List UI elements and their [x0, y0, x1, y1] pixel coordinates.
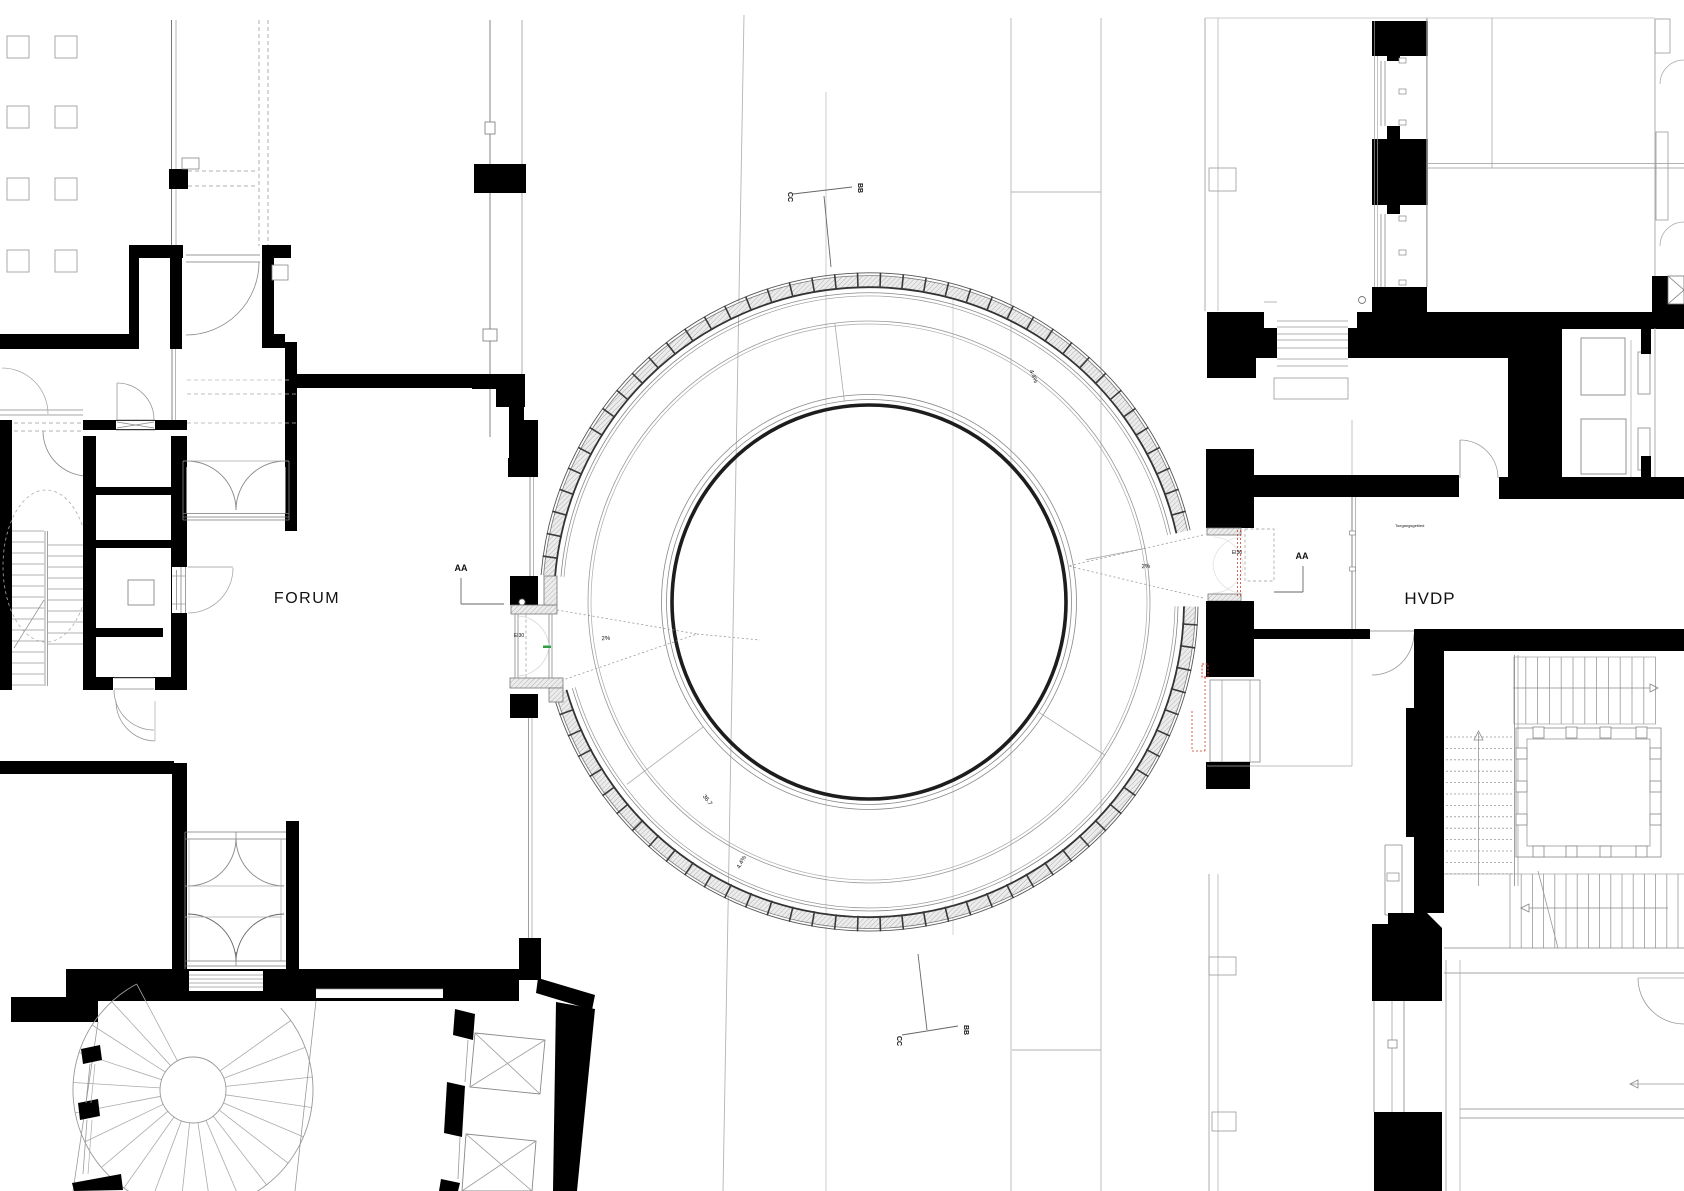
svg-text:BB: BB	[856, 183, 863, 193]
svg-text:Toegangsgebied: Toegangsgebied	[1395, 523, 1424, 528]
svg-text:EI30: EI30	[1232, 550, 1243, 556]
svg-text:BB: BB	[962, 1025, 969, 1035]
svg-text:AA: AA	[455, 563, 468, 573]
svg-text:2%: 2%	[601, 636, 611, 643]
svg-text:EI30: EI30	[514, 633, 525, 639]
svg-text:CC: CC	[895, 1036, 902, 1046]
svg-text:HVDP: HVDP	[1404, 589, 1455, 608]
svg-text:2%: 2%	[1141, 564, 1151, 571]
svg-text:FORUM: FORUM	[274, 590, 340, 607]
svg-text:AA: AA	[1296, 551, 1309, 561]
svg-text:CC: CC	[786, 192, 793, 202]
